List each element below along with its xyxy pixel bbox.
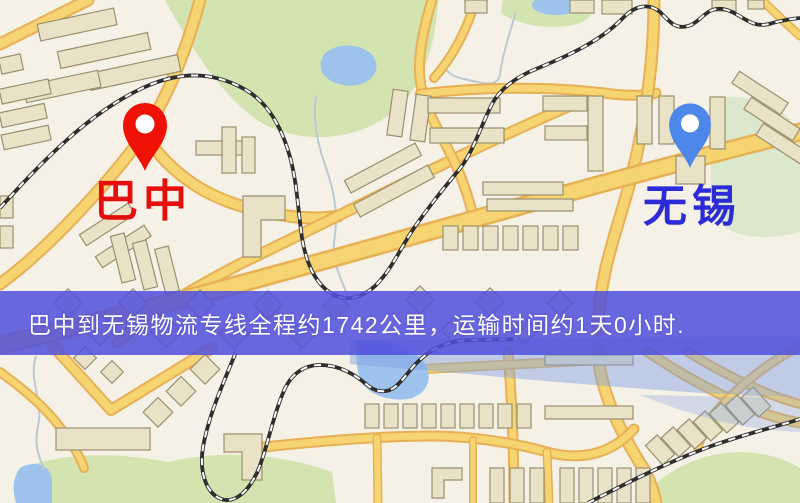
map-svg: 巴中 无锡 — [0, 0, 800, 503]
map-canvas[interactable]: 巴中 无锡 巴中到无锡物流专线全程约1742公里，运输时间约1天0小时. — [0, 0, 800, 503]
route-banner-text: 巴中到无锡物流专线全程约1742公里，运输时间约1天0小时. — [28, 306, 685, 340]
route-banner: 巴中到无锡物流专线全程约1742公里，运输时间约1天0小时. — [0, 291, 800, 355]
origin-label: 巴中 — [94, 177, 192, 226]
destination-label: 无锡 — [643, 182, 741, 231]
